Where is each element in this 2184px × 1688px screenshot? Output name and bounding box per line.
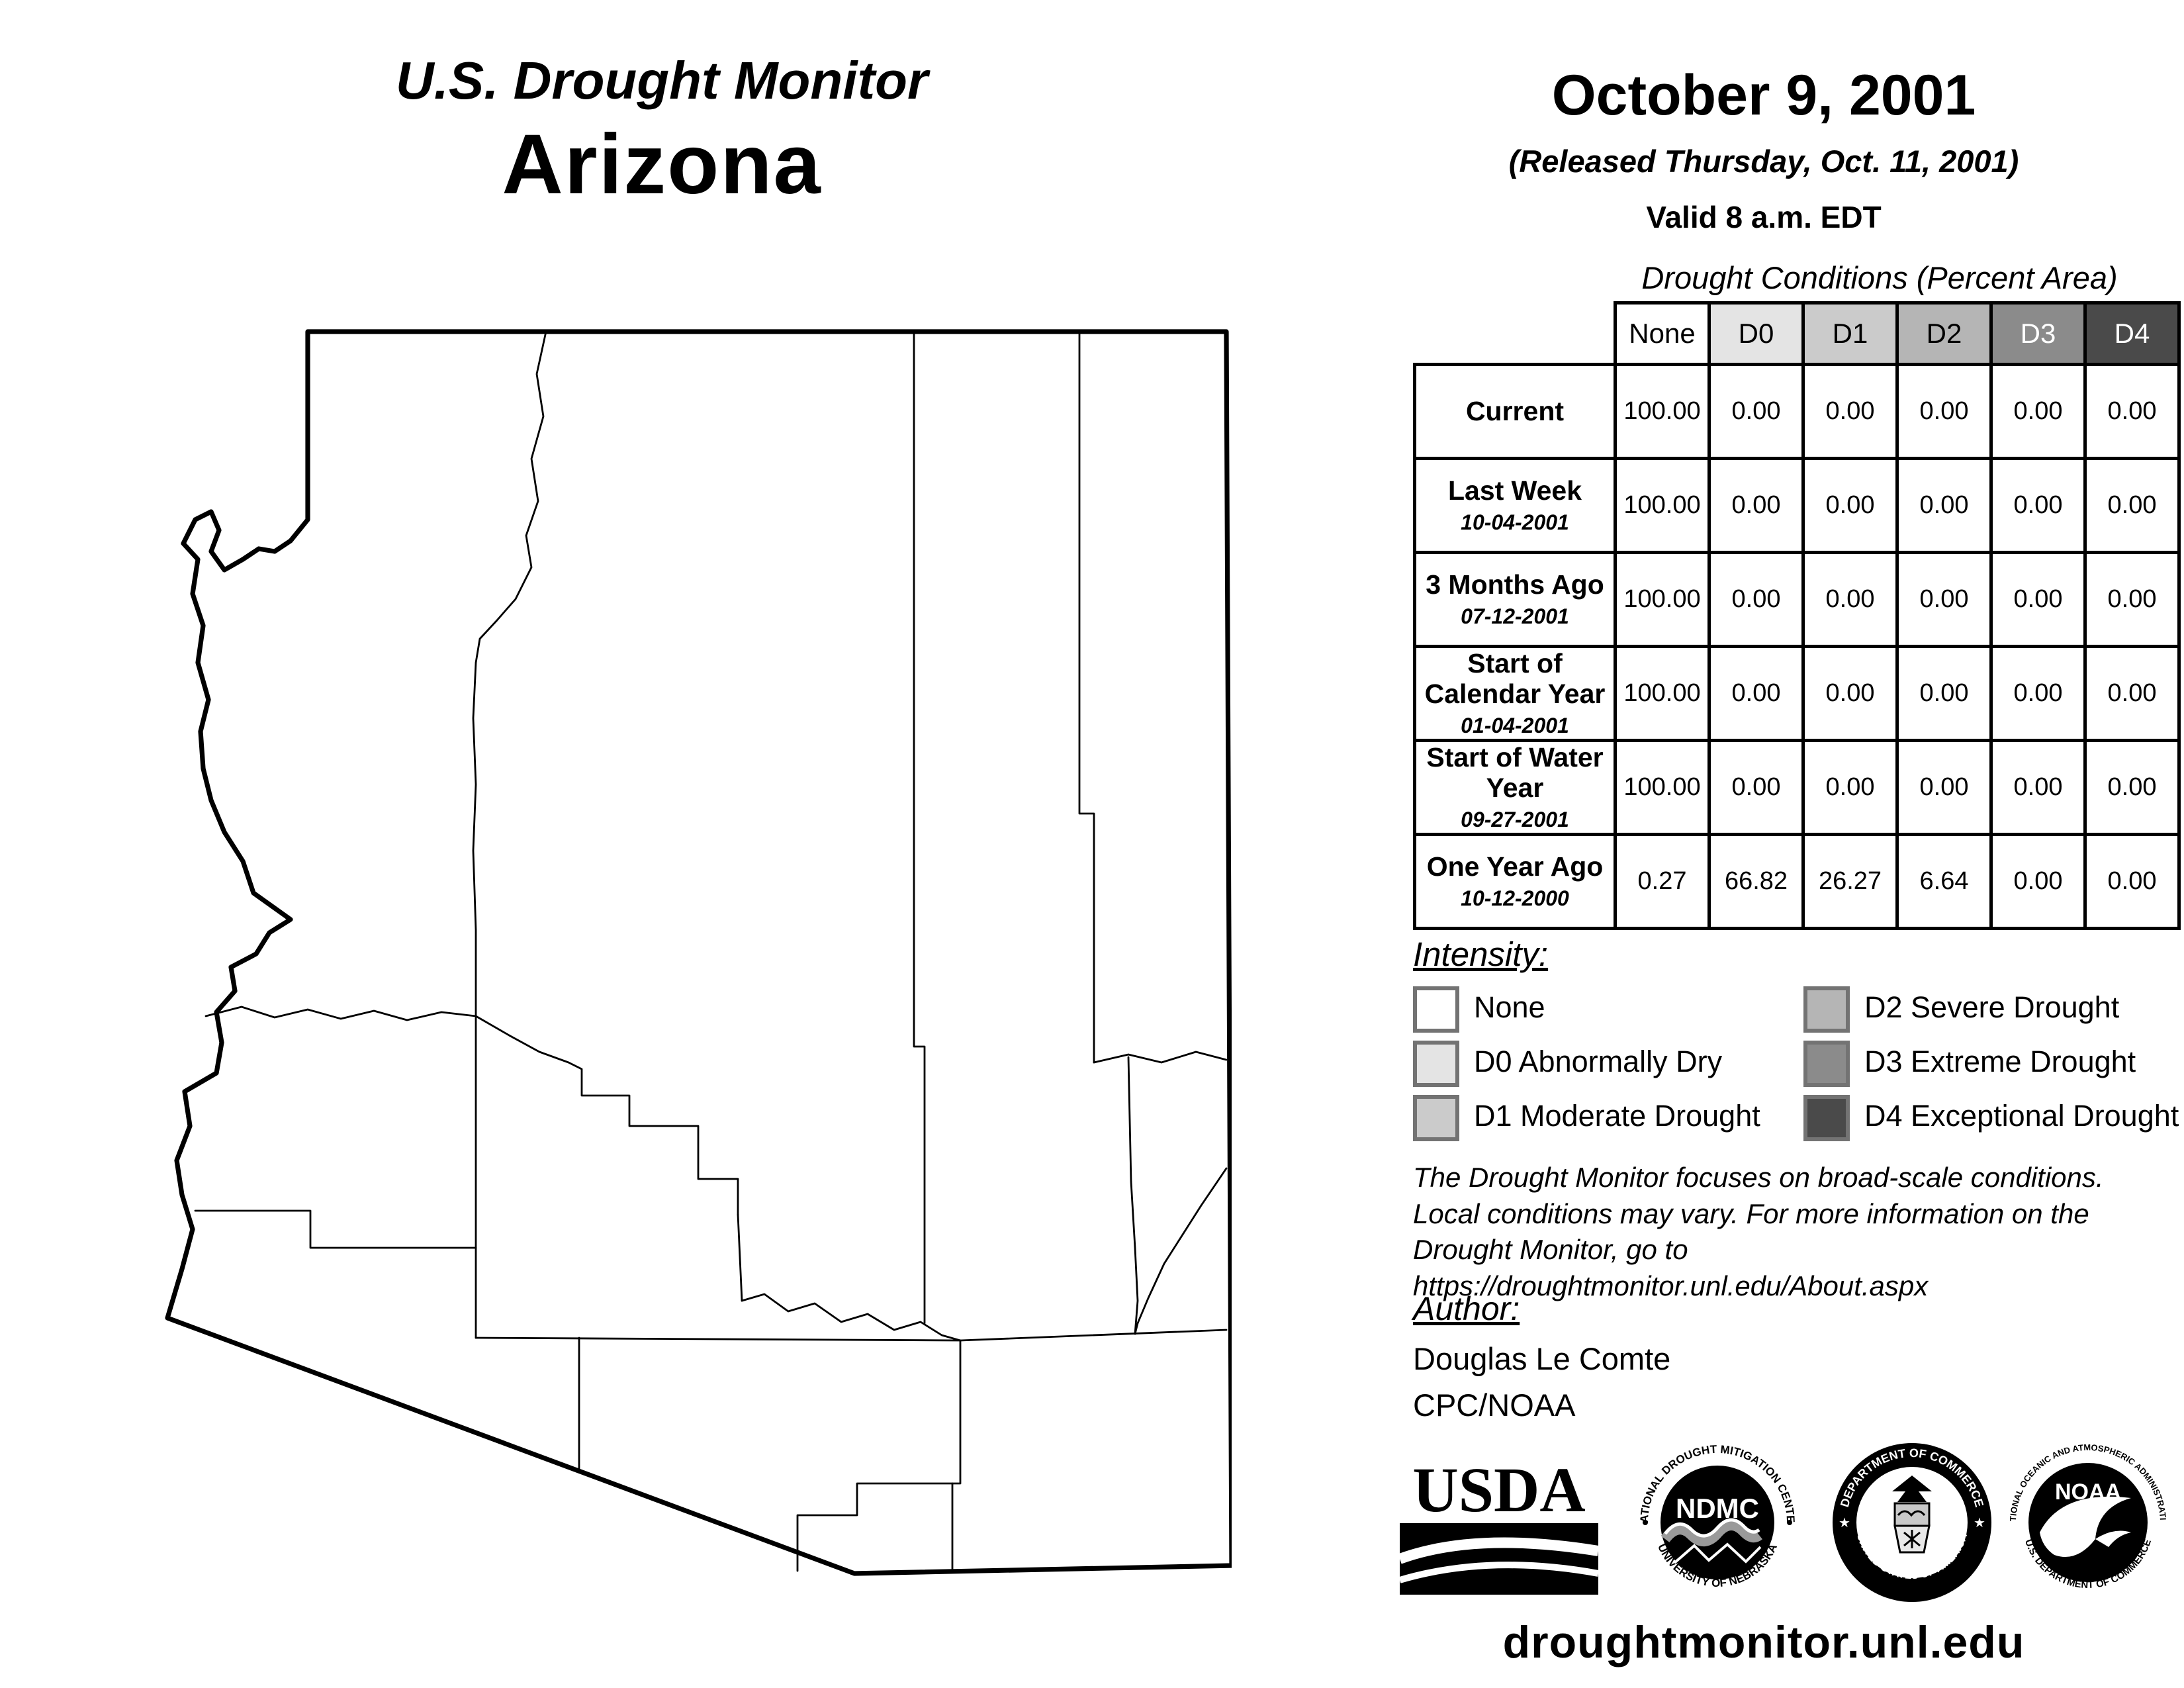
- report-supertitle: U.S. Drought Monitor: [199, 53, 1125, 109]
- svg-text:NDMC: NDMC: [1676, 1493, 1759, 1524]
- svg-text:NOAA: NOAA: [2055, 1479, 2121, 1505]
- author-heading: Author:: [1413, 1289, 1520, 1328]
- table-row: Last Week 10-04-2001 100.00 0.00 0.00 0.…: [1415, 459, 2179, 553]
- row-label-last-week: Last Week 10-04-2001: [1415, 459, 1615, 553]
- cell-value: 0.00: [1897, 741, 1991, 835]
- row-label-start-calendar-year: Start of Calendar Year 01-04-2001: [1415, 647, 1615, 741]
- released-date: (Released Thursday, Oct. 11, 2001): [1350, 143, 2177, 179]
- state-outline: [167, 332, 1232, 1573]
- ndmc-logo-icon: NATIONAL DROUGHT MITIGATION CENTER UNIVE…: [1628, 1433, 1807, 1612]
- cell-value: 0.00: [1709, 553, 1803, 647]
- row-label-3-months-ago: 3 Months Ago 07-12-2001: [1415, 553, 1615, 647]
- cell-value: 0.00: [1991, 459, 2085, 553]
- cell-value: 0.00: [2085, 835, 2179, 929]
- disclaimer-text: The Drought Monitor focuses on broad-sca…: [1413, 1160, 2184, 1304]
- cell-value: 0.00: [2085, 553, 2179, 647]
- cell-value: 100.00: [1615, 459, 1709, 553]
- cell-value: 0.00: [1709, 365, 1803, 459]
- drought-monitor-page: U.S. Drought Monitor Arizona: [0, 0, 2184, 1688]
- right-header-block: October 9, 2001 (Released Thursday, Oct.…: [1350, 63, 2177, 235]
- cell-value: 100.00: [1615, 553, 1709, 647]
- cell-value: 0.00: [1709, 741, 1803, 835]
- cell-value: 0.00: [1991, 741, 2085, 835]
- table-caption: Drought Conditions (Percent Area): [1612, 259, 2148, 296]
- cell-value: 0.00: [1897, 459, 1991, 553]
- site-url: droughtmonitor.unl.edu: [1350, 1617, 2177, 1668]
- cell-value: 0.00: [1803, 553, 1897, 647]
- cell-value: 0.00: [1991, 835, 2085, 929]
- legend-swatch-d2: [1803, 986, 1850, 1033]
- commerce-seal-icon: DEPARTMENT OF COMMERCE UNITED STATES OF …: [1827, 1437, 1997, 1608]
- legend-swatch-d1: [1413, 1095, 1459, 1141]
- arizona-map: [142, 321, 1232, 1582]
- cell-value: 0.00: [1803, 365, 1897, 459]
- table-header-row: None D0 D1 D2 D3 D4: [1415, 303, 2179, 365]
- cell-value: 0.00: [1709, 647, 1803, 741]
- cell-value: 0.00: [1897, 365, 1991, 459]
- legend-swatch-d0: [1413, 1041, 1459, 1087]
- svg-text:★: ★: [1974, 1516, 1985, 1530]
- map-date: October 9, 2001: [1350, 63, 2177, 128]
- cell-value: 0.00: [2085, 647, 2179, 741]
- table-row: 3 Months Ago 07-12-2001 100.00 0.00 0.00…: [1415, 553, 2179, 647]
- cell-value: 0.27: [1615, 835, 1709, 929]
- table-row: Start of Water Year 09-27-2001 100.00 0.…: [1415, 741, 2179, 835]
- logo-row: USDA NATIONAL DROUGHT MITIGATION CENTER …: [1383, 1433, 2184, 1612]
- valid-time: Valid 8 a.m. EDT: [1350, 199, 2177, 235]
- cell-value: 0.00: [1991, 553, 2085, 647]
- col-header-d1: D1: [1803, 303, 1897, 365]
- row-label-one-year-ago: One Year Ago 10-12-2000: [1415, 835, 1615, 929]
- cell-value: 0.00: [2085, 459, 2179, 553]
- cell-value: 26.27: [1803, 835, 1897, 929]
- cell-value: 66.82: [1709, 835, 1803, 929]
- svg-text:★: ★: [1839, 1516, 1850, 1530]
- col-header-d0: D0: [1709, 303, 1803, 365]
- cell-value: 0.00: [1803, 647, 1897, 741]
- left-title-block: U.S. Drought Monitor Arizona: [199, 53, 1125, 209]
- cell-value: 100.00: [1615, 741, 1709, 835]
- cell-value: 6.64: [1897, 835, 1991, 929]
- cell-value: 0.00: [1709, 459, 1803, 553]
- col-header-d2: D2: [1897, 303, 1991, 365]
- legend-swatch-none: [1413, 986, 1459, 1033]
- col-header-d4: D4: [2085, 303, 2179, 365]
- cell-value: 0.00: [1897, 647, 1991, 741]
- author-org: CPC/NOAA: [1413, 1387, 1576, 1423]
- table-row: Start of Calendar Year 01-04-2001 100.00…: [1415, 647, 2179, 741]
- svg-text:USDA: USDA: [1412, 1460, 1585, 1525]
- noaa-logo-icon: NATIONAL OCEANIC AND ATMOSPHERIC ADMINIS…: [1999, 1433, 2177, 1612]
- table-row: One Year Ago 10-12-2000 0.27 66.82 26.27…: [1415, 835, 2179, 929]
- cell-value: 0.00: [2085, 741, 2179, 835]
- cell-value: 0.00: [1897, 553, 1991, 647]
- legend-title: Intensity:: [1413, 935, 1548, 974]
- table-corner-spacer: [1415, 303, 1615, 365]
- cell-value: 0.00: [1991, 365, 2085, 459]
- table-row: Current 100.00 0.00 0.00 0.00 0.00 0.00: [1415, 365, 2179, 459]
- cell-value: 100.00: [1615, 647, 1709, 741]
- cell-value: 0.00: [1803, 459, 1897, 553]
- legend-swatch-d3: [1803, 1041, 1850, 1087]
- cell-value: 0.00: [1803, 741, 1897, 835]
- legend-swatch-d4: [1803, 1095, 1850, 1141]
- drought-conditions-table: None D0 D1 D2 D3 D4 Current 100.00 0.00 …: [1413, 301, 2181, 930]
- col-header-d3: D3: [1991, 303, 2085, 365]
- usda-logo-icon: USDA: [1396, 1460, 1602, 1599]
- row-label-current: Current: [1415, 365, 1615, 459]
- author-name: Douglas Le Comte: [1413, 1340, 1670, 1377]
- cell-value: 0.00: [1991, 647, 2085, 741]
- cell-value: 100.00: [1615, 365, 1709, 459]
- cell-value: 0.00: [2085, 365, 2179, 459]
- state-title: Arizona: [199, 120, 1125, 209]
- row-label-start-water-year: Start of Water Year 09-27-2001: [1415, 741, 1615, 835]
- col-header-none: None: [1615, 303, 1709, 365]
